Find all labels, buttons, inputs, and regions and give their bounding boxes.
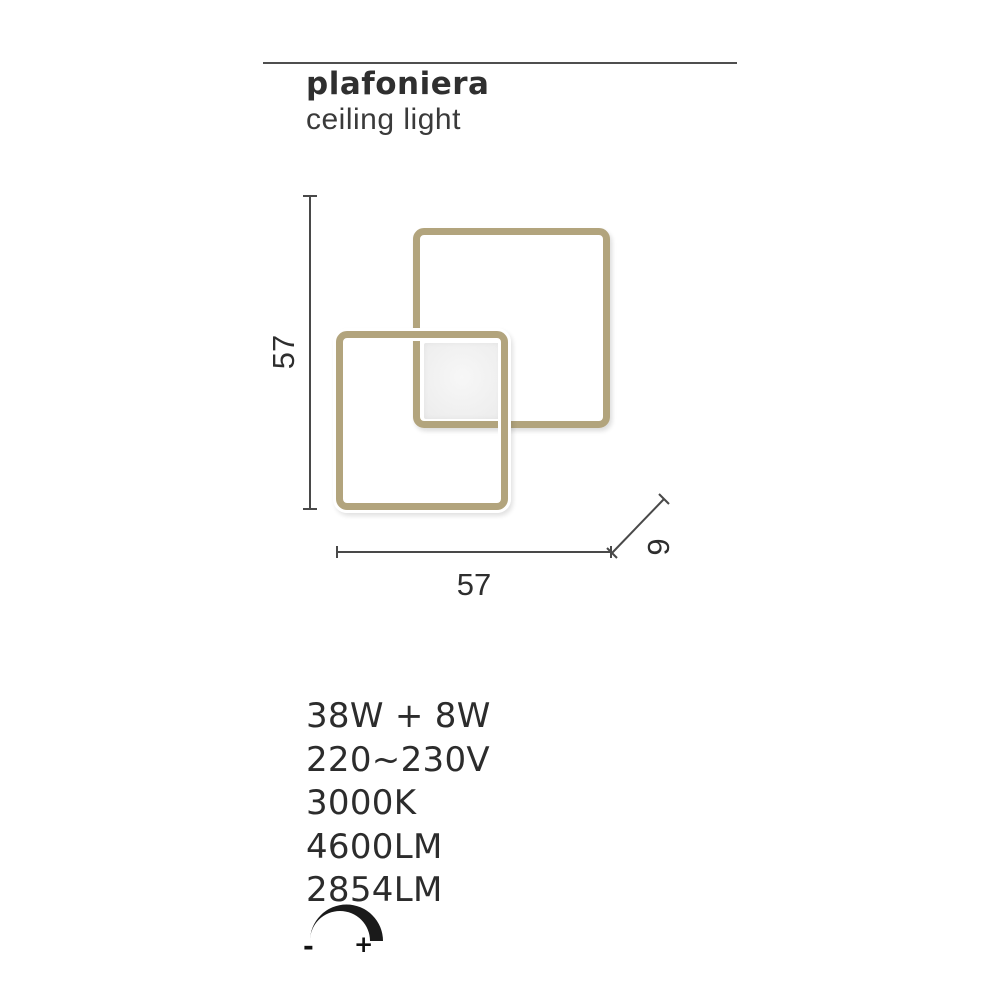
dimmer-icon — [306, 901, 390, 951]
spec-lumen-primary: 4600LM — [306, 826, 491, 870]
specs-list: 38W + 8W 220~230V 3000K 4600LM 2854LM — [306, 695, 491, 913]
product-title-english: ceiling light — [306, 102, 489, 137]
spec-wattage: 38W + 8W — [306, 695, 491, 739]
product-title-italian: plafoniera — [306, 66, 489, 102]
width-dimension-line — [337, 551, 611, 553]
height-dimension-label: 57 — [259, 327, 309, 377]
spec-sheet-page: plafoniera ceiling light 57 57 9 38W + 8… — [0, 0, 1000, 1000]
height-dimension-cap-top — [303, 195, 317, 197]
spec-voltage: 220~230V — [306, 739, 491, 783]
spec-color-temperature: 3000K — [306, 782, 491, 826]
height-dimension-cap-bottom — [303, 508, 317, 510]
depth-dimension-label: 9 — [639, 527, 679, 567]
height-dimension-line — [309, 195, 311, 510]
dimmer-plus-label: + — [354, 932, 373, 958]
width-dimension-cap-left — [336, 546, 338, 558]
dimmer-minus-label: - — [303, 934, 314, 960]
lamp-frame-small-square — [336, 331, 508, 510]
header-divider — [263, 62, 737, 64]
width-dimension-label: 57 — [444, 565, 504, 605]
title-block: plafoniera ceiling light — [306, 66, 489, 137]
